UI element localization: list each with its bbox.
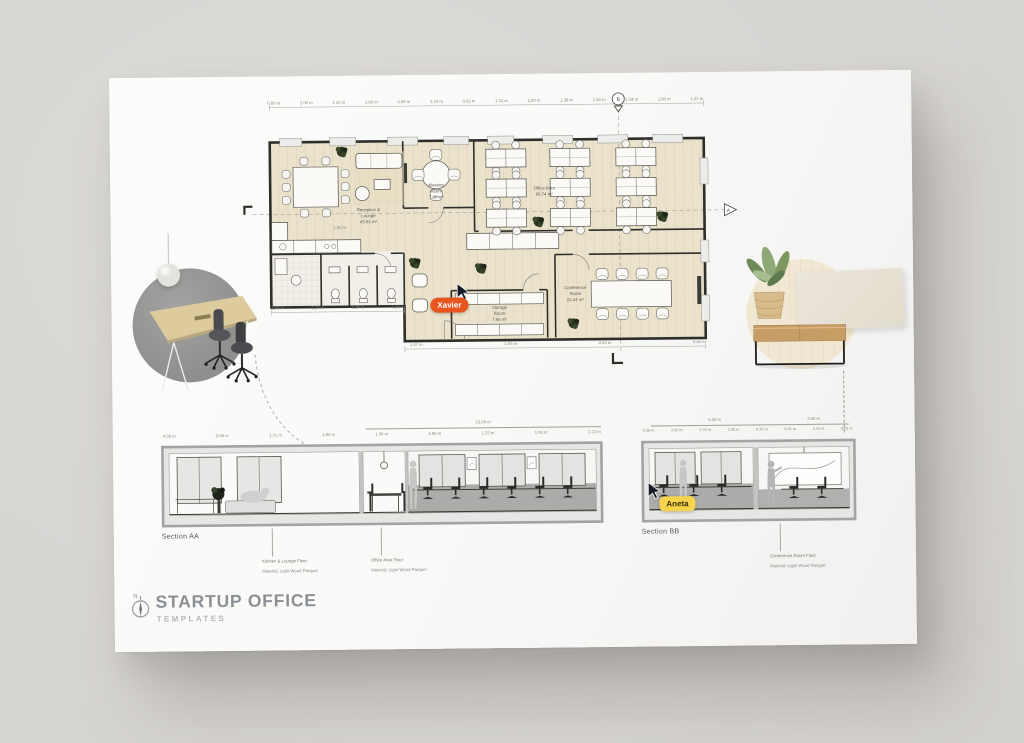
desk-background: B A 0.60 m2.00 m1.10 m1.80 m0.90 m2.20 m… (0, 0, 1024, 743)
dim-label: 2.41 m (813, 427, 825, 431)
pendant-lamp (157, 263, 180, 286)
dim-label: 1.23 m (690, 96, 703, 101)
dim-label: 1.80 m (365, 99, 378, 104)
dim-label: 1.31 m (269, 432, 282, 437)
dim-label: 0.35 m (756, 427, 768, 431)
dim-label: 1.33 m (482, 430, 495, 435)
dim-label: 0.01 m (784, 427, 796, 431)
room-label-office: Office Area66.74 m² (534, 185, 555, 198)
section-aa-total-dim: 10.66 m (366, 418, 601, 425)
dim-label: 0.90 m (397, 99, 410, 104)
section-aa-notes: Kitchen & Lounge FloorMaterial: Light Wo… (262, 557, 447, 576)
plan-inner-dimension: 1.80 m (334, 225, 346, 230)
dim-label: 0.01 m (841, 426, 853, 430)
poster-subtitle: TEMPLATES (157, 614, 227, 624)
dim-label: 4.38 m (163, 434, 176, 439)
dim-label: 1.00 m (504, 341, 517, 346)
dim-label: 1.80 m (658, 96, 671, 101)
dim-label: 2.00 m (300, 100, 313, 105)
room-label-conference: ConferenceRoom22.24 m² (564, 285, 586, 304)
cursor-name: Aneta (666, 499, 688, 508)
section-aa-drawing (161, 441, 604, 528)
dim-label: 1.27 m (311, 305, 324, 310)
dim-label: 1.38 m (560, 97, 573, 102)
dim-label: 2.00 m (671, 428, 683, 432)
section-bb-caption: Section BB (642, 528, 680, 535)
material-note: Office Area FloorMaterial: Light Wood Pa… (371, 557, 447, 575)
wall-board (796, 268, 905, 331)
poster-sheet: B A 0.60 m2.00 m1.10 m1.80 m0.90 m2.20 m… (109, 70, 917, 652)
section-aa: 10.66 m 4.38 m2.66 m1.31 m1.80 m1.36 m1.… (161, 417, 607, 592)
section-aa-dimensions: 4.38 m2.66 m1.31 m1.80 m1.36 m1.80 m1.33… (163, 429, 601, 439)
dim-label: 2.66 m (216, 433, 229, 438)
dim-label: 0.60 m (267, 100, 280, 105)
svg-text:N: N (133, 594, 137, 600)
cursor-label-xavier: Xavier (430, 297, 468, 312)
dim-label: 1.80 m (593, 97, 606, 102)
pendant-cord (168, 234, 169, 266)
dim-label: 1.34 m (625, 97, 638, 102)
dim-label: 1.80 m (535, 430, 548, 435)
dim-label: 1.29 m (392, 304, 405, 309)
section-aa-caption: Section AA (162, 533, 199, 540)
dim-label: 1.10 m (332, 100, 345, 105)
section-bb-notes: Conference Room FloorMaterial: Light Woo… (770, 552, 850, 570)
dim-label: 0.36 m (643, 429, 655, 433)
north-arrow-icon: N (129, 591, 151, 621)
room-label-reception: Reception &Lounge45.83 m² (357, 207, 381, 226)
material-note: Conference Room FloorMaterial: Light Woo… (770, 553, 846, 571)
cursor-name: Xavier (437, 301, 461, 310)
dim-label: 4.53 m (599, 340, 612, 345)
section-marker-a: A (724, 204, 736, 216)
dim-label: 1.80 m (528, 98, 541, 103)
cursor-arrow-icon-aneta (647, 481, 662, 498)
dim-label: 1.23 m (588, 429, 601, 434)
dim-label: 1.36 m (375, 431, 388, 436)
dim-label: 2.20 m (430, 99, 443, 104)
dim-label: 0.62 m (463, 98, 476, 103)
room-label-meeting: MeetingRoom7.80 m² (428, 182, 443, 201)
poster-title: STARTUP OFFICE (155, 590, 316, 613)
dim-label: 2.00 m (728, 428, 740, 432)
floor-plan: B A 0.60 m2.00 m1.10 m1.80 m0.90 m2.20 m… (237, 90, 740, 385)
sideboard-illustration (752, 322, 852, 369)
material-note: Kitchen & Lounge FloorMaterial: Light Wo… (262, 558, 338, 576)
room-label-storage: StorageRoom7.66 m² (492, 305, 507, 324)
cursor-label-aneta: Aneta (659, 496, 695, 511)
dim-label: 1.29 m (352, 305, 365, 310)
dim-label: 0.70 m (699, 428, 711, 432)
section-bb-total-dim-1: 5.42 m (651, 416, 779, 422)
section-bb-dimensions: 0.36 m2.00 m0.70 m2.00 m0.35 m0.01 m2.41… (643, 426, 853, 432)
dim-label: 1.31 m (495, 98, 508, 103)
dim-label: 1.47 m (410, 342, 423, 347)
svg-text:A: A (727, 208, 730, 213)
section-bb-total-dim-2: 3.43 m (779, 415, 849, 421)
dim-label: 1.80 m (322, 432, 335, 437)
dim-label: 5.41 m (693, 339, 706, 344)
dim-label: 1.80 m (428, 431, 441, 436)
